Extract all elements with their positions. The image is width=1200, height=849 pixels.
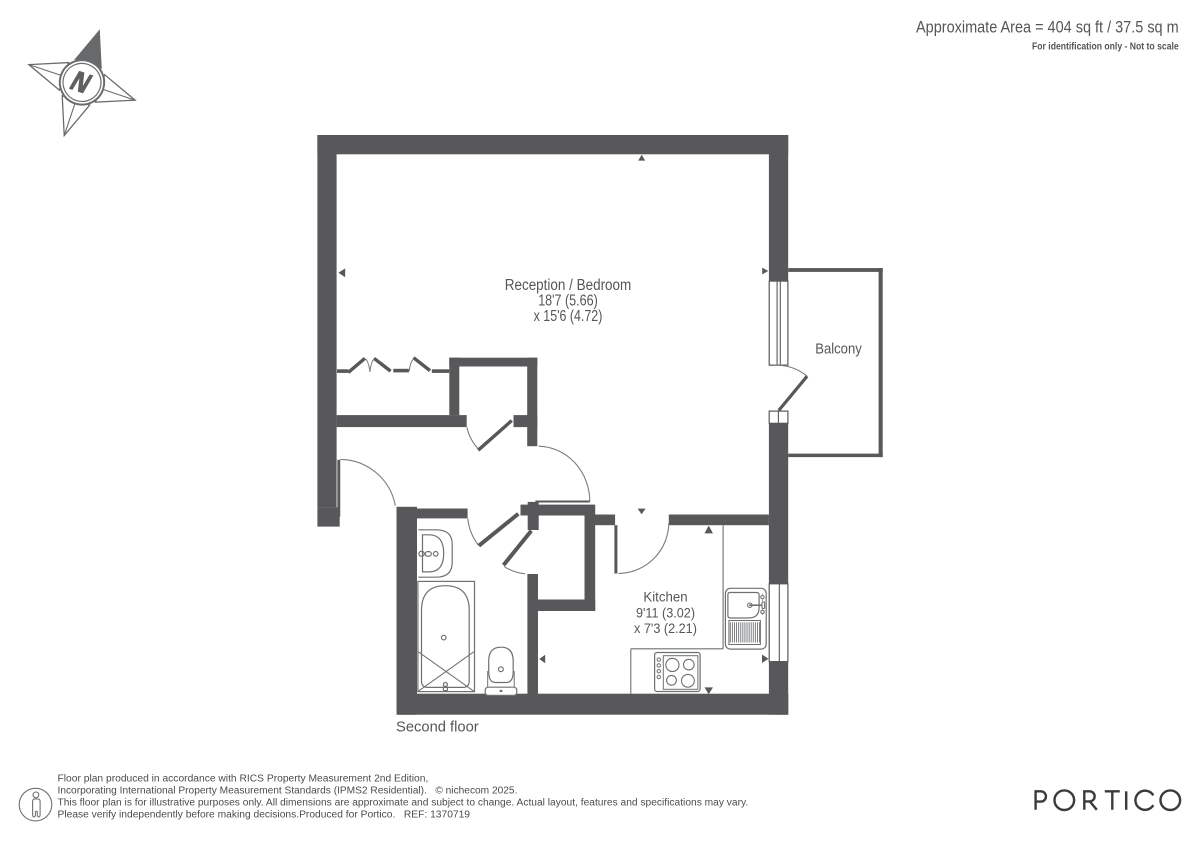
svg-text:Reception / Bedroom: Reception / Bedroom [505, 277, 632, 294]
svg-text:For identification only - Not: For identification only - Not to scale [1032, 42, 1179, 53]
svg-text:Floor plan produced in accorda: Floor plan produced in accordance with R… [58, 773, 429, 784]
svg-text:x 7'3 (2.21): x 7'3 (2.21) [634, 620, 697, 636]
svg-text:Kitchen: Kitchen [643, 589, 687, 605]
svg-text:Approximate Area = 404 sq ft /: Approximate Area = 404 sq ft / 37.5 sq m [916, 18, 1179, 37]
svg-text:Incorporating International Pr: Incorporating International Property Mea… [58, 785, 518, 796]
svg-text:9'11 (3.02): 9'11 (3.02) [636, 605, 695, 621]
svg-text:Please verify independently be: Please verify independently before makin… [58, 810, 471, 821]
svg-text:Second floor: Second floor [396, 719, 479, 736]
svg-text:x 15'6 (4.72): x 15'6 (4.72) [534, 308, 603, 325]
svg-text:This floor plan is for illustr: This floor plan is for illustrative purp… [58, 798, 749, 809]
svg-text:Balcony: Balcony [815, 340, 862, 357]
